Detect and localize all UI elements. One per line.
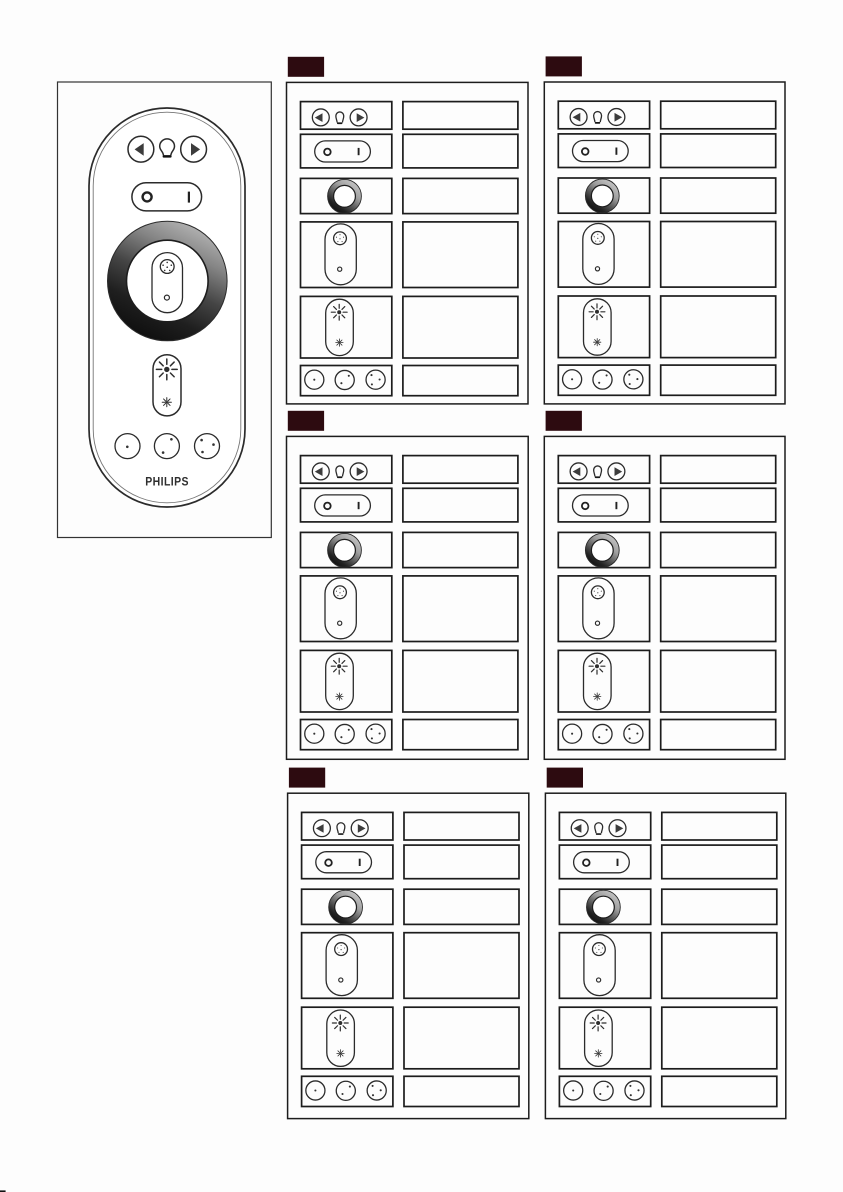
svg-text:PHILIPS: PHILIPS	[145, 474, 189, 488]
